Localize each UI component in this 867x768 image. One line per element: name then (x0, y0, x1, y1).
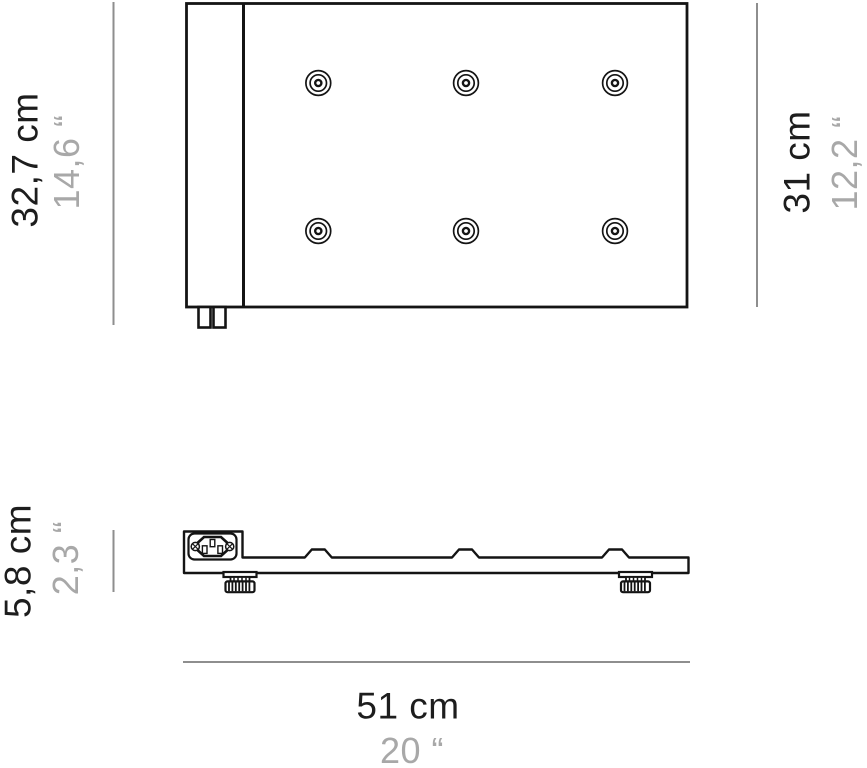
depth-panel-cm-label: 31 cm (779, 110, 816, 213)
depth-panel-inch-label: 12,2 “ (827, 115, 863, 210)
line-art (0, 0, 867, 768)
width-inch-label: 20 “ (380, 733, 444, 768)
adjustable-foot-icon (224, 572, 257, 592)
depth-overall-cm-label: 32,7 cm (7, 92, 44, 227)
side-profile-outline (184, 532, 689, 574)
height-inch-label: 2,3 “ (48, 521, 84, 596)
adjustable-foot-icon (619, 572, 652, 592)
top-view (187, 4, 688, 328)
power-inlet-icon (189, 534, 237, 560)
height-cm-label: 5,8 cm (0, 504, 37, 618)
depth-overall-inch-label: 14,6 “ (49, 114, 85, 209)
rear-tabs (199, 307, 226, 328)
side-view (184, 532, 689, 593)
width-cm-label: 51 cm (356, 688, 459, 725)
technical-drawing-canvas: 32,7 cm 14,6 “ 31 cm 12,2 “ 5,8 cm 2,3 “… (0, 0, 867, 768)
top-view-outline (187, 4, 688, 308)
